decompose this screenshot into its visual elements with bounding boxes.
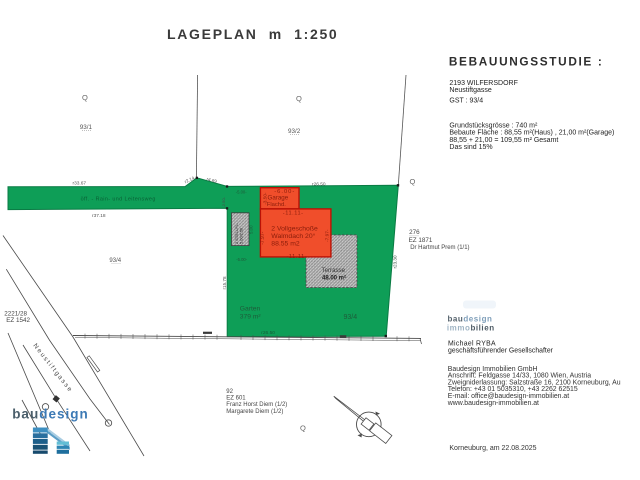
svg-text:2 Vollgeschoße: 2 Vollgeschoße: [271, 226, 318, 233]
svg-text:88.55 m2: 88.55 m2: [271, 241, 300, 248]
svg-text:5.00/2.50: 5.00/2.50: [239, 227, 244, 244]
svg-text:Franz Horst Diem (1/2): Franz Horst Diem (1/2): [226, 402, 287, 408]
svg-text:92: 92: [226, 389, 233, 395]
svg-text:88,55 + 21,00 = 109,55 m² Gesa: 88,55 + 21,00 = 109,55 m² Gesamt: [449, 137, 558, 144]
svg-text:93/4: 93/4: [109, 258, 121, 264]
svg-text:Margarete Diem (1/2): Margarete Diem (1/2): [226, 409, 283, 415]
svg-text:-5.00-: -5.00-: [236, 189, 248, 194]
svg-text:r26.50: r26.50: [261, 330, 275, 336]
svg-text:EZ 601: EZ 601: [226, 396, 246, 402]
svg-text:r23.30: r23.30: [393, 255, 398, 268]
svg-text:5.00: 5.00: [249, 225, 254, 234]
svg-text:BEBAUUNGSSTUDIE :: BEBAUUNGSSTUDIE :: [449, 54, 604, 68]
svg-text:Garage: Garage: [268, 195, 289, 202]
svg-text:EZ 1542: EZ 1542: [6, 317, 30, 324]
svg-text:-2.50-: -2.50-: [221, 196, 226, 207]
svg-text:-3.50-: -3.50-: [262, 192, 267, 204]
svg-text:Michael RYBA: Michael RYBA: [448, 340, 496, 347]
svg-text:Grundstücksgrösse : 740 m²: Grundstücksgrösse : 740 m²: [449, 122, 538, 129]
svg-text:Bebaute Fläche : 88,55 m²(Haus: Bebaute Fläche : 88,55 m²(Haus) , 21,00 …: [449, 130, 614, 137]
svg-text:-5.00-: -5.00-: [236, 257, 248, 262]
svg-text:baudesign: baudesign: [448, 314, 493, 323]
svg-text:-7.97-: -7.97-: [325, 229, 331, 242]
svg-text:Neustiftgasse: Neustiftgasse: [449, 87, 492, 94]
svg-text:2193 WILFERSDORF: 2193 WILFERSDORF: [449, 80, 517, 87]
svg-text:Walmdach 20°: Walmdach 20°: [271, 232, 315, 240]
svg-text:Garten: Garten: [240, 306, 261, 313]
svg-text:r15.78: r15.78: [222, 276, 227, 289]
svg-text:48.00 m²: 48.00 m²: [322, 275, 346, 282]
svg-text:öff. - Rain- und Leitensweg: öff. - Rain- und Leitensweg: [81, 196, 156, 202]
svg-text:Q: Q: [300, 424, 306, 433]
svg-text:Terrasse: Terrasse: [322, 267, 346, 274]
svg-text:LAGEPLAN m 1:250: LAGEPLAN m 1:250: [167, 26, 338, 42]
svg-text:Q: Q: [410, 177, 416, 186]
svg-text:baudesign: baudesign: [12, 407, 89, 422]
svg-text:Q: Q: [296, 94, 302, 103]
svg-text:r33.67: r33.67: [73, 180, 87, 186]
svg-text:immobilien: immobilien: [447, 324, 495, 333]
svg-text:Dr Hartmut Prem (1/1): Dr Hartmut Prem (1/1): [410, 245, 469, 251]
svg-text:r26.50: r26.50: [312, 181, 326, 187]
svg-text:93/2: 93/2: [288, 128, 301, 135]
svg-text:93/1: 93/1: [80, 124, 93, 131]
svg-text:GST : 93/4: GST : 93/4: [449, 98, 483, 105]
svg-text:Q: Q: [82, 93, 88, 102]
svg-text:geschäftsführender Gesellschaf: geschäftsführender Gesellschafter: [448, 347, 554, 354]
svg-text:Flachd.: Flachd.: [267, 202, 286, 208]
svg-text:-7.97-: -7.97-: [260, 231, 266, 244]
svg-text:379 m²: 379 m²: [240, 313, 262, 320]
svg-text:EZ 1871: EZ 1871: [409, 237, 433, 244]
svg-text:-11.11-: -11.11-: [287, 254, 308, 260]
svg-text:-11.11-: -11.11-: [283, 211, 304, 217]
svg-text:93/4: 93/4: [344, 314, 358, 321]
svg-text:276: 276: [409, 229, 420, 236]
svg-text:Das sind 15%: Das sind 15%: [449, 144, 492, 151]
svg-text:Korneuburg, am 22.08.2025: Korneuburg, am 22.08.2025: [449, 445, 536, 452]
svg-text:r37.18: r37.18: [92, 213, 106, 219]
svg-text:www.baudesign-immobilien.at: www.baudesign-immobilien.at: [447, 400, 539, 407]
